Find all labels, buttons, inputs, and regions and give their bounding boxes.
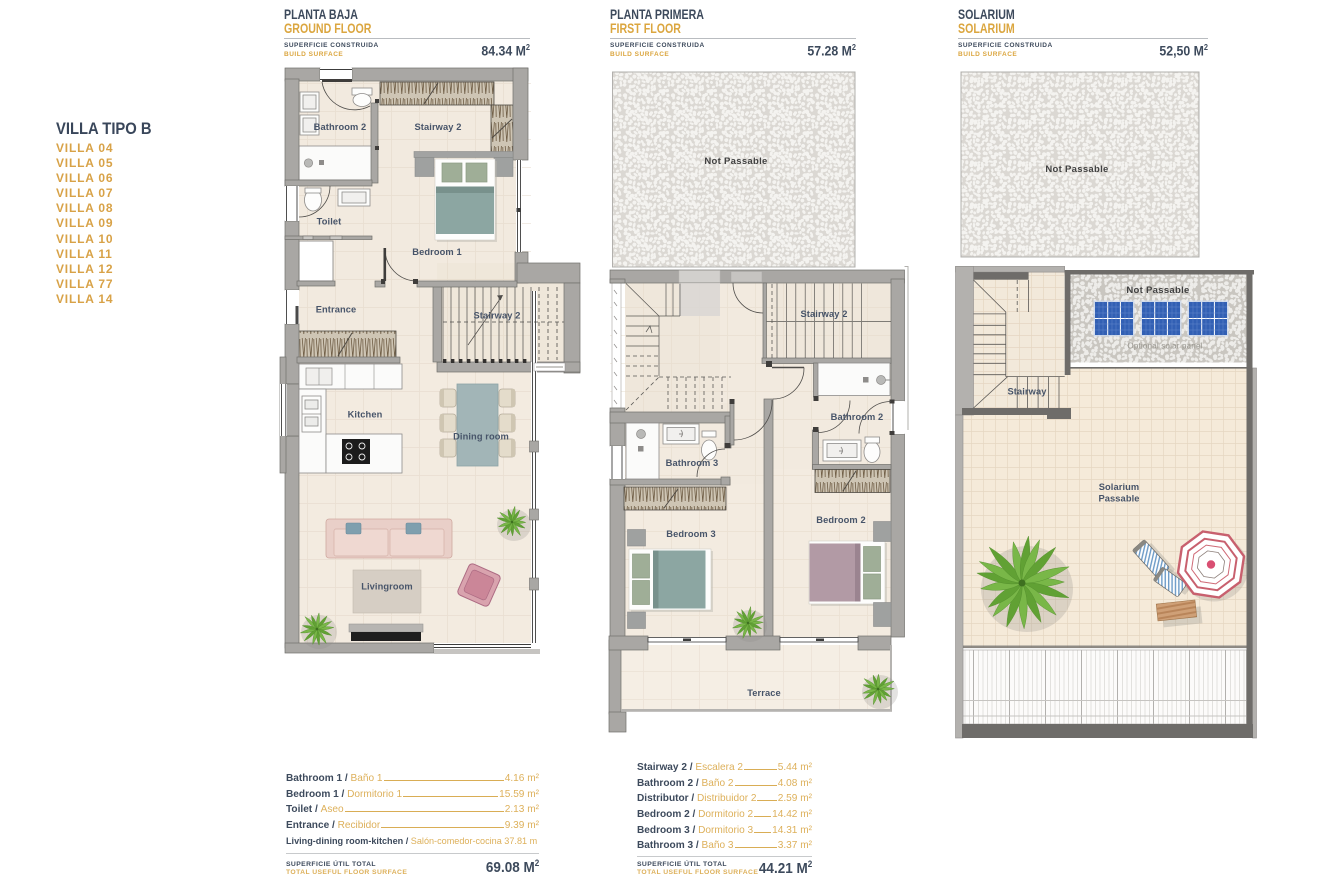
svg-text:Livingroom: Livingroom [361,582,413,592]
svg-text:Bedroom 2: Bedroom 2 [816,515,865,525]
svg-text:Optional solar panel: Optional solar panel [1127,342,1202,351]
svg-text:Not Passable: Not Passable [1045,164,1108,175]
svg-text:Stairway: Stairway [1007,387,1047,397]
svg-text:Solarium: Solarium [1099,482,1140,492]
svg-text:Stairway 2: Stairway 2 [801,309,848,319]
svg-text:Not Passable: Not Passable [1126,285,1189,296]
svg-text:Bathroom 2: Bathroom 2 [831,412,884,422]
svg-text:Bathroom 3: Bathroom 3 [666,458,719,468]
svg-text:Entrance: Entrance [316,305,357,315]
svg-text:Terrace: Terrace [747,688,781,698]
svg-text:Bedroom 3: Bedroom 3 [666,529,715,539]
svg-text:Dining room: Dining room [453,432,509,442]
svg-text:Stairway 2: Stairway 2 [474,311,521,321]
svg-text:Toilet: Toilet [317,217,342,227]
svg-text:Stairway 2: Stairway 2 [415,122,462,132]
svg-text:Passable: Passable [1098,494,1139,504]
svg-text:Kitchen: Kitchen [348,410,383,420]
svg-text:Not Passable: Not Passable [704,156,767,167]
svg-text:Bathroom 2: Bathroom 2 [314,122,367,132]
svg-text:Bedroom 1: Bedroom 1 [412,247,461,257]
